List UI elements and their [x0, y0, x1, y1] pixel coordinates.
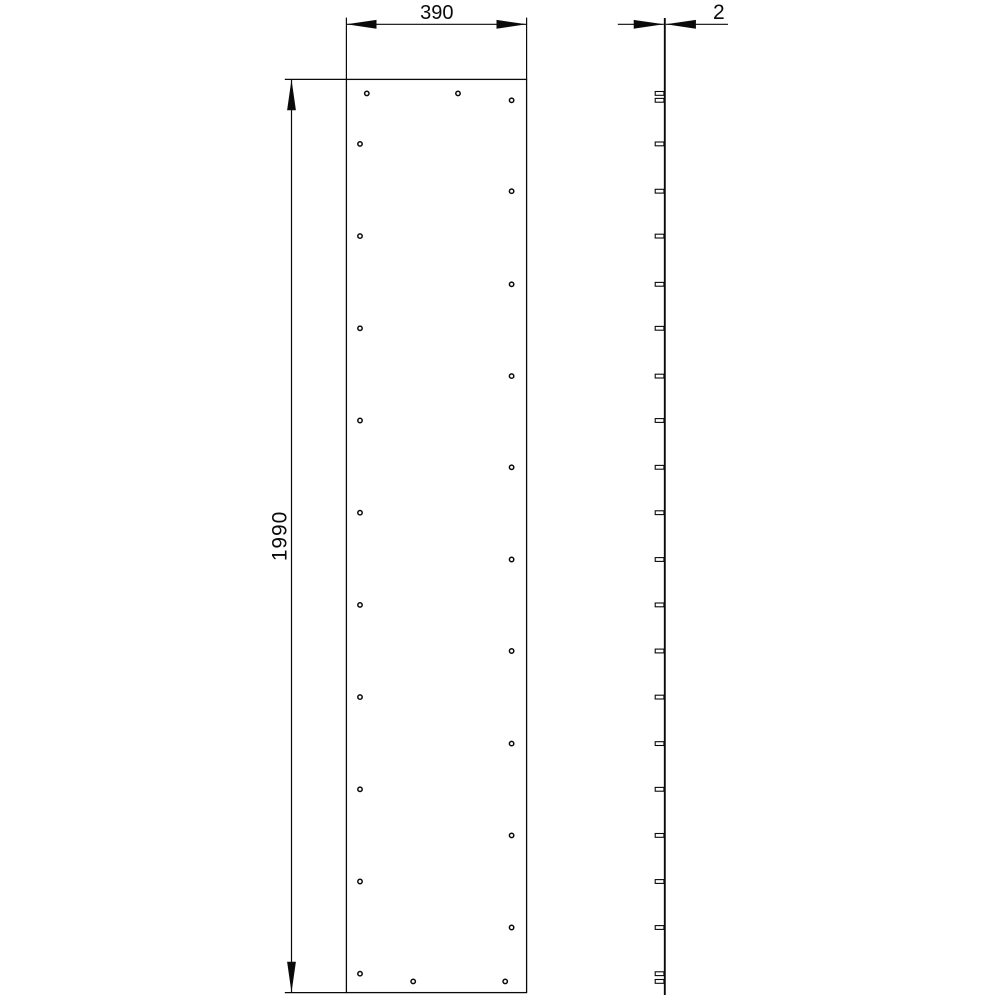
svg-text:2: 2: [713, 1, 725, 24]
svg-text:1990: 1990: [269, 511, 292, 561]
svg-text:390: 390: [420, 2, 453, 24]
